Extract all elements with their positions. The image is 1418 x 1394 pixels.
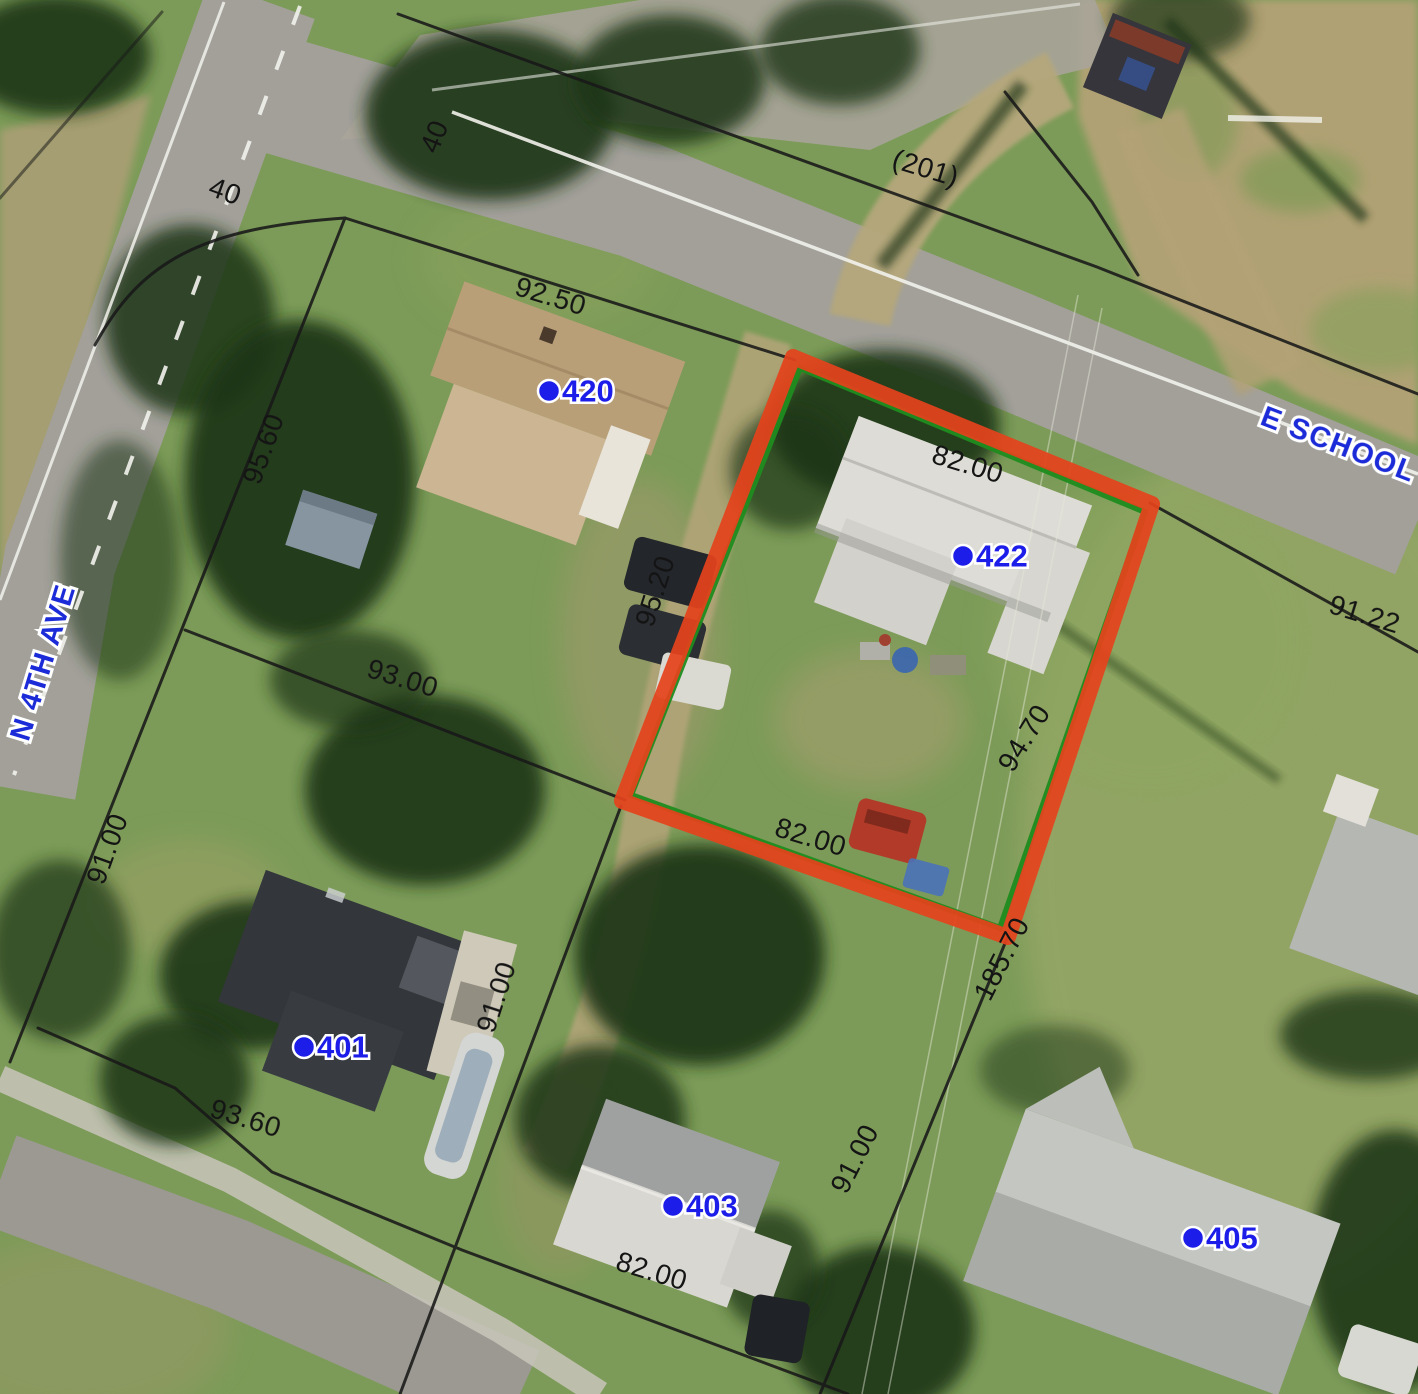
svg-text:405[interactable]: 405 [1206, 1221, 1258, 1256]
parcel-point-icon[interactable] [293, 1036, 315, 1058]
parcel-point-icon[interactable] [1182, 1227, 1204, 1249]
svg-text:422[interactable]: 422 [976, 539, 1028, 574]
svg-text:420[interactable]: 420 [562, 374, 614, 409]
parcel-point-icon[interactable] [538, 380, 560, 402]
blue-tarp [892, 647, 918, 673]
svg-text:403[interactable]: 403 [686, 1189, 738, 1224]
car-dark-bottom [743, 1293, 811, 1364]
svg-text:401[interactable]: 401 [317, 1030, 369, 1065]
parcel-point-icon[interactable] [952, 545, 974, 567]
parcel-point-icon[interactable] [662, 1195, 684, 1217]
aerial-parcel-map[interactable]: 40 40 (201) 92.50 95.60 82.00 91.22 95.2… [0, 0, 1418, 1394]
